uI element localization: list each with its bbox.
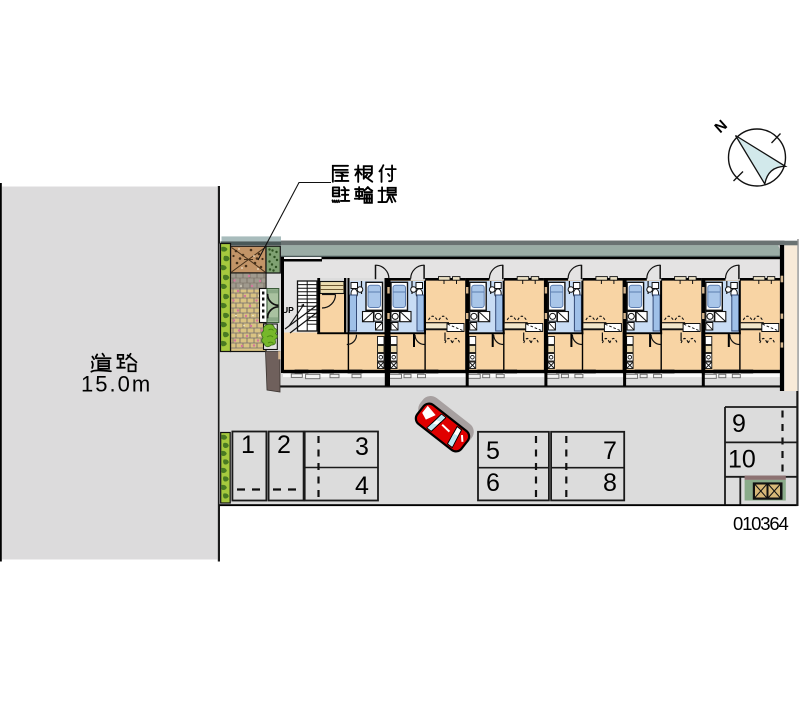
svg-text:1: 1	[241, 431, 255, 459]
svg-text:10: 10	[728, 446, 756, 474]
svg-text:010364: 010364	[733, 513, 788, 534]
svg-text:2: 2	[277, 431, 291, 459]
svg-text:UP: UP	[282, 305, 294, 315]
svg-text:8: 8	[603, 469, 617, 497]
svg-text:9: 9	[732, 410, 746, 438]
svg-text:3: 3	[355, 433, 369, 461]
svg-text:5: 5	[486, 437, 500, 465]
svg-text:15.0m: 15.0m	[81, 372, 152, 397]
svg-text:6: 6	[486, 469, 500, 497]
svg-text:7: 7	[603, 437, 617, 465]
svg-text:4: 4	[355, 472, 369, 500]
